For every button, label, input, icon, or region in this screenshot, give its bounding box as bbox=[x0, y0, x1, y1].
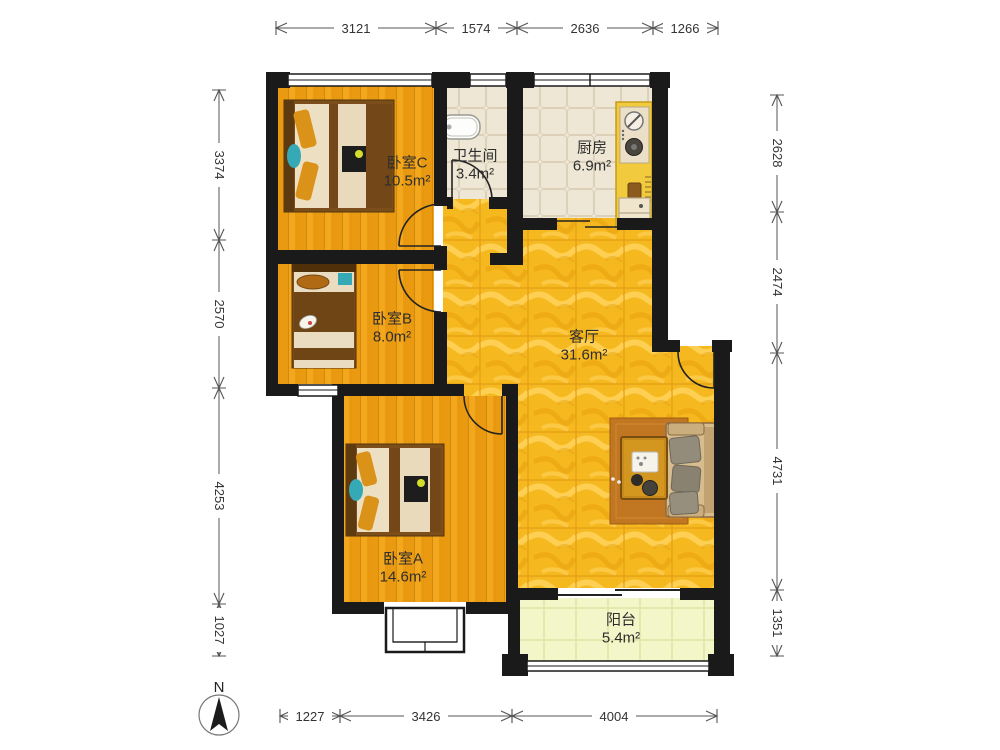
dimension-label: 2474 bbox=[770, 268, 785, 297]
room-label-bedroom-b: 卧室B 8.0m² bbox=[372, 310, 412, 345]
floor-plan: 3121 1574 2636 1266 3374 2570 4253 1027 … bbox=[0, 0, 1000, 750]
sliding-door-icon-balcony bbox=[558, 590, 680, 595]
dimension-label: 1266 bbox=[671, 21, 700, 36]
window-icon-kitchen bbox=[534, 74, 650, 86]
room-area: 10.5m² bbox=[384, 172, 431, 190]
room-name: 卫生间 bbox=[452, 147, 497, 165]
dimension-label: 4253 bbox=[212, 482, 227, 511]
sofa-icon bbox=[666, 423, 716, 517]
room-name: 卧室C bbox=[384, 154, 431, 172]
dimension-label: 2570 bbox=[212, 300, 227, 329]
bed-icon-bedroom-c bbox=[284, 100, 394, 212]
room-area: 14.6m² bbox=[380, 568, 427, 586]
compass-north-label: N bbox=[214, 679, 225, 696]
dimension-label: 3374 bbox=[212, 151, 227, 180]
room-label-living-room: 客厅 31.6m² bbox=[561, 328, 608, 363]
dimension-label: 4731 bbox=[770, 457, 785, 486]
railing-icon-balcony bbox=[527, 661, 709, 671]
dimension-label: 2628 bbox=[770, 139, 785, 168]
bed-icon-bedroom-a bbox=[346, 444, 444, 536]
dimension-label: 1351 bbox=[770, 609, 785, 638]
room-area: 5.4m² bbox=[602, 629, 640, 647]
compass-icon: N bbox=[199, 679, 239, 735]
room-name: 阳台 bbox=[602, 611, 640, 629]
floor-plan-canvas: 3121 1574 2636 1266 3374 2570 4253 1027 … bbox=[0, 0, 1000, 750]
dimension-label: 4004 bbox=[600, 709, 629, 724]
window-icon-bathroom bbox=[470, 74, 506, 86]
kitchen-counter-icon bbox=[616, 102, 652, 228]
room-label-bathroom: 卫生间 3.4m² bbox=[452, 147, 497, 182]
room-label-bedroom-a: 卧室A 14.6m² bbox=[380, 550, 427, 585]
room-name: 厨房 bbox=[573, 139, 611, 157]
room-name: 客厅 bbox=[561, 328, 608, 346]
window-icon-bedroom-b bbox=[298, 385, 338, 396]
window-icon-bedroom-c bbox=[288, 74, 432, 86]
room-label-balcony: 阳台 5.4m² bbox=[602, 611, 640, 646]
room-label-bedroom-c: 卧室C 10.5m² bbox=[384, 154, 431, 189]
room-area: 8.0m² bbox=[372, 328, 412, 346]
dimension-label: 1574 bbox=[462, 21, 491, 36]
bay-window-icon-bedroom-a bbox=[384, 604, 466, 654]
room-area: 6.9m² bbox=[573, 157, 611, 175]
bed-icon-bedroom-b bbox=[292, 262, 356, 368]
room-area: 3.4m² bbox=[452, 165, 497, 183]
room-name: 卧室A bbox=[380, 550, 427, 568]
room-name: 卧室B bbox=[372, 310, 412, 328]
dimension-label: 3121 bbox=[342, 21, 371, 36]
dimension-label: 3426 bbox=[412, 709, 441, 724]
room-label-kitchen: 厨房 6.9m² bbox=[573, 139, 611, 174]
dimension-label: 1027 bbox=[212, 616, 227, 645]
dimension-label: 1227 bbox=[296, 709, 325, 724]
dimension-label: 2636 bbox=[571, 21, 600, 36]
room-area: 31.6m² bbox=[561, 346, 608, 364]
